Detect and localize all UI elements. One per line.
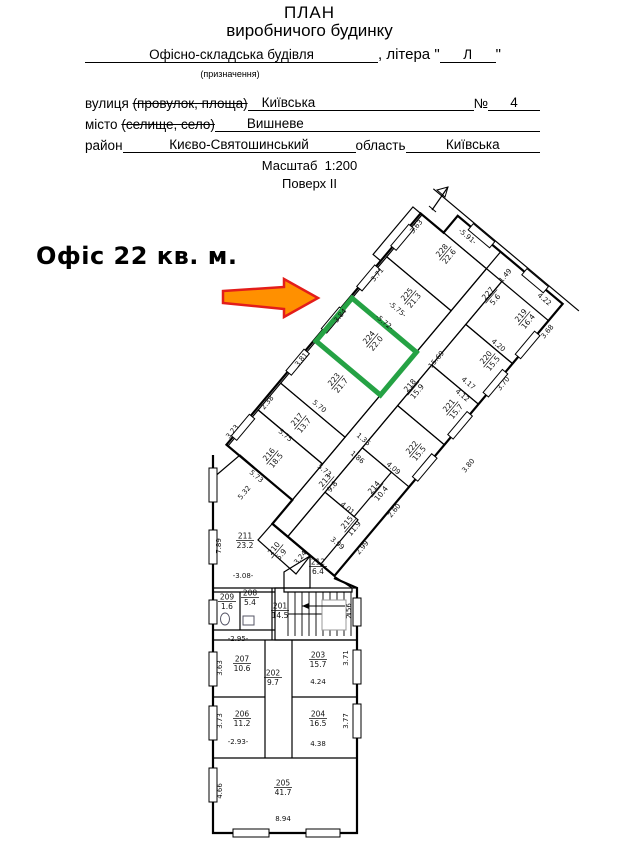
svg-text:41.7: 41.7 <box>275 788 292 797</box>
svg-text:6.4: 6.4 <box>312 567 324 576</box>
svg-text:207: 207 <box>235 655 250 664</box>
dim-label: 3.84 <box>332 307 348 325</box>
room-label-212: 2126.4 <box>309 558 327 577</box>
dim-label: 4.24 <box>310 678 326 686</box>
callout-arrow <box>223 279 318 317</box>
plan-labels: 22822.622521.32275.622422.022321.721916.… <box>215 218 556 823</box>
svg-text:204: 204 <box>311 710 326 719</box>
svg-text:15.7: 15.7 <box>310 660 327 669</box>
dim-label: -3.08- <box>233 572 254 580</box>
dim-label: 5.70 <box>311 398 328 414</box>
room-label-224: 22422.0 <box>360 328 386 354</box>
dim-label: -2.95- <box>228 635 249 643</box>
dim-label: 5.32 <box>236 484 252 501</box>
room-label-228: 22822.6 <box>433 241 459 267</box>
svg-text:212: 212 <box>311 558 326 567</box>
room-label-217: 21713.7 <box>288 410 314 436</box>
svg-text:16.5: 16.5 <box>310 719 327 728</box>
dim-label: 3.63 <box>408 218 424 235</box>
room-label-204: 20416.5 <box>309 710 327 729</box>
dim-label: 4.66 <box>216 783 224 799</box>
upper-wing <box>199 186 579 586</box>
room-label-209: 2091.6 <box>218 593 236 612</box>
dim-label: 5.75 <box>277 427 294 443</box>
svg-text:205: 205 <box>276 779 291 788</box>
room-label-203: 20315.7 <box>309 651 327 670</box>
document-page: ПЛАН виробничого будинку Офісно-складськ… <box>0 0 619 843</box>
room-label-223: 22321.7 <box>325 370 351 396</box>
svg-text:10.6: 10.6 <box>234 664 251 673</box>
dim-label: 3.73 <box>216 713 224 729</box>
dim-label: 1.86 <box>349 449 367 465</box>
svg-text:202: 202 <box>266 669 281 678</box>
room-label-222: 22215.5 <box>403 438 429 464</box>
room-label-206: 20611.2 <box>233 710 251 729</box>
dim-label: 2.56 <box>345 603 353 619</box>
svg-text:14.5: 14.5 <box>272 611 289 620</box>
room-label-207: 20710.6 <box>233 655 251 674</box>
dim-label: 2.99 <box>354 539 370 556</box>
ne-parapet <box>433 189 579 311</box>
room-label-210: 2105.9 <box>265 539 291 565</box>
room-label-208: 2085.4 <box>241 589 259 608</box>
dim-label: -2.93- <box>228 738 249 746</box>
svg-text:9.7: 9.7 <box>267 678 279 687</box>
room-label-225: 22521.3 <box>398 285 424 311</box>
dim-label: 4.12 <box>454 387 471 403</box>
room-label-216: 21618.5 <box>260 445 286 471</box>
svg-text:206: 206 <box>235 710 250 719</box>
staircase <box>288 592 351 636</box>
stair-direction-arrow <box>302 603 309 609</box>
room-label-219: 21916.4 <box>512 306 538 332</box>
svg-text:5.4: 5.4 <box>244 598 256 607</box>
svg-text:209: 209 <box>220 593 235 602</box>
dim-label: 5.73 <box>248 468 265 484</box>
dim-label: 3.68 <box>539 323 555 340</box>
dim-label: 4.38 <box>310 740 326 748</box>
room-label-215: 21511.9 <box>338 513 364 539</box>
room-label-211: 21123.2 <box>236 532 254 551</box>
dim-label: 7.89 <box>215 538 223 554</box>
room-label-205: 20541.7 <box>274 779 292 798</box>
dim-label: 2.38 <box>259 394 275 411</box>
dim-label: 8.94 <box>275 815 291 823</box>
dim-label: 3.63 <box>216 660 224 676</box>
dim-label: 3.77 <box>342 713 350 729</box>
svg-text:203: 203 <box>311 651 326 660</box>
room-label-202: 2029.7 <box>264 669 282 688</box>
dim-label: 3.71 <box>342 650 350 666</box>
floor-plan: 22822.622521.32275.622422.022321.721916.… <box>0 0 619 843</box>
svg-text:11.2: 11.2 <box>234 719 251 728</box>
dim-label: 2.60 <box>386 502 402 519</box>
lower-wing-outer <box>213 455 357 833</box>
svg-text:1.6: 1.6 <box>221 602 233 611</box>
dim-label: 3.80 <box>460 457 476 474</box>
room-label-227: 2275.6 <box>479 284 505 310</box>
wc-fixtures <box>221 613 255 625</box>
svg-text:23.2: 23.2 <box>237 541 254 550</box>
dim-label: 1.49 <box>497 267 513 284</box>
dim-label: 15.69 <box>427 349 446 369</box>
svg-text:201: 201 <box>273 602 288 611</box>
svg-text:211: 211 <box>238 532 253 541</box>
svg-text:208: 208 <box>243 589 258 598</box>
room-label-201: 20114.5 <box>271 602 289 621</box>
